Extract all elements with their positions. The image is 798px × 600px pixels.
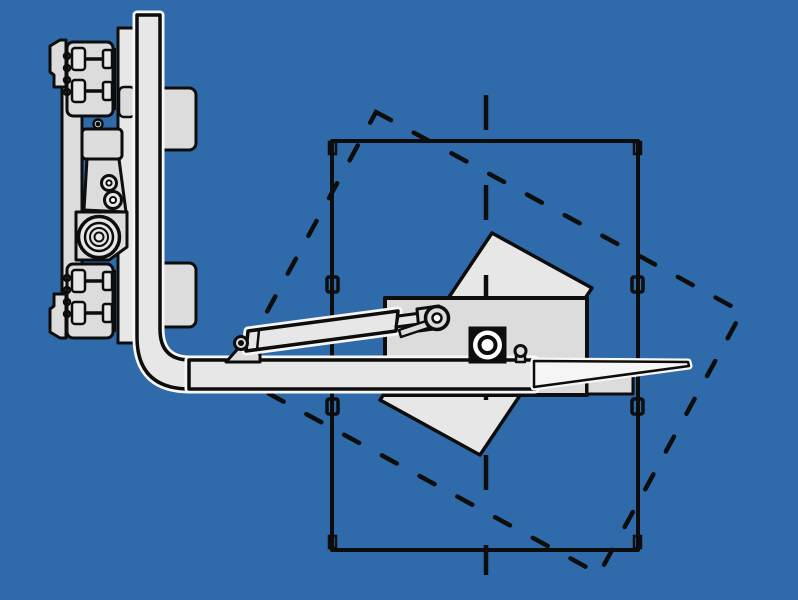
rod-end-eye-hole — [433, 314, 442, 323]
fork-arm — [189, 360, 535, 389]
hook-block-top — [64, 42, 115, 116]
hook-block-bottom — [64, 264, 115, 338]
hook-profile — [72, 80, 85, 102]
roller-large — [79, 217, 120, 258]
rotator-hub — [470, 328, 505, 362]
diagram-page — [0, 0, 798, 600]
hook-profile — [72, 270, 85, 292]
motor-box — [82, 129, 122, 159]
diagram-canvas — [0, 0, 798, 600]
hook-profile — [72, 48, 85, 70]
adjust-knob — [515, 346, 526, 363]
hook-profile — [72, 302, 85, 324]
